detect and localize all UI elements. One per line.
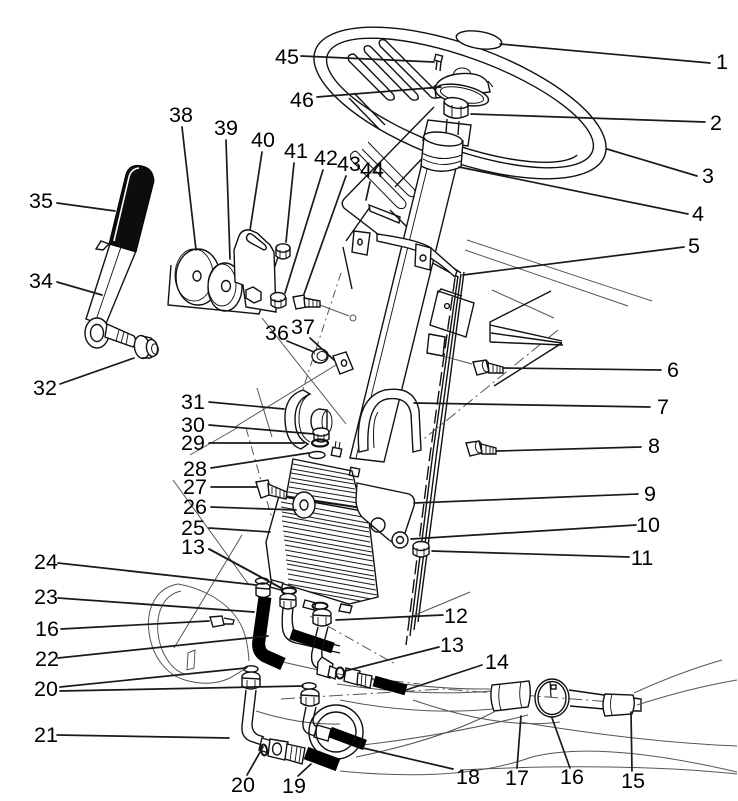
svg-text:25: 25 (181, 516, 205, 540)
svg-text:34: 34 (29, 269, 53, 293)
svg-text:8: 8 (648, 434, 660, 458)
svg-text:39: 39 (214, 116, 238, 140)
svg-text:42: 42 (314, 146, 338, 170)
svg-text:14: 14 (485, 650, 509, 674)
svg-text:31: 31 (181, 390, 205, 414)
svg-text:41: 41 (284, 139, 308, 163)
svg-text:7: 7 (657, 395, 669, 419)
svg-text:43: 43 (337, 152, 361, 176)
svg-text:32: 32 (33, 376, 57, 400)
svg-text:18: 18 (456, 765, 480, 789)
svg-text:21: 21 (34, 723, 58, 747)
svg-text:1: 1 (716, 50, 728, 74)
svg-text:6: 6 (667, 358, 679, 382)
svg-text:10: 10 (636, 513, 660, 537)
svg-text:35: 35 (29, 189, 53, 213)
svg-text:12: 12 (444, 604, 468, 628)
svg-text:16: 16 (560, 765, 584, 789)
svg-text:44: 44 (360, 158, 384, 182)
svg-text:5: 5 (688, 234, 700, 258)
svg-text:37: 37 (291, 315, 315, 339)
svg-text:19: 19 (282, 774, 306, 798)
svg-text:46: 46 (290, 88, 314, 112)
svg-text:30: 30 (181, 413, 205, 437)
svg-text:2: 2 (710, 111, 722, 135)
svg-text:40: 40 (251, 128, 275, 152)
svg-text:45: 45 (275, 45, 299, 69)
svg-text:9: 9 (644, 482, 656, 506)
svg-text:38: 38 (169, 103, 193, 127)
svg-text:13: 13 (440, 633, 464, 657)
svg-text:23: 23 (34, 585, 58, 609)
svg-text:24: 24 (34, 550, 58, 574)
svg-text:22: 22 (35, 647, 59, 671)
svg-text:20: 20 (231, 773, 255, 797)
svg-text:16: 16 (35, 617, 59, 641)
svg-text:17: 17 (505, 766, 529, 790)
svg-text:28: 28 (183, 457, 207, 481)
svg-text:4: 4 (692, 202, 704, 226)
svg-text:36: 36 (265, 321, 289, 345)
svg-text:11: 11 (631, 546, 653, 570)
svg-text:3: 3 (702, 164, 714, 188)
svg-text:20: 20 (34, 677, 58, 701)
svg-text:15: 15 (621, 769, 645, 793)
